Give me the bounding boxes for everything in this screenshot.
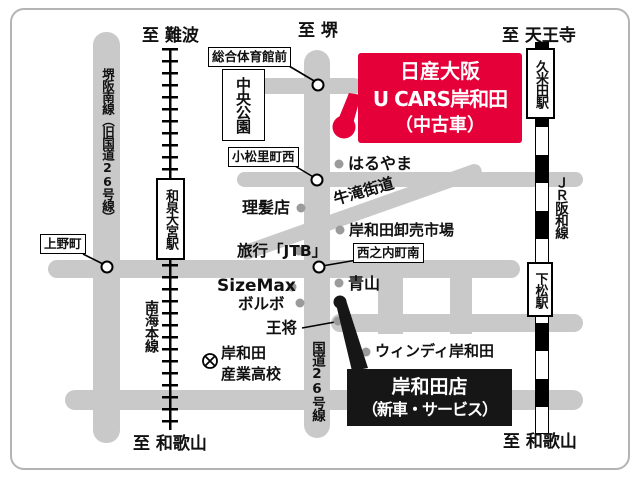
landmark-sangyo-hs-line1: 岸和田 (221, 346, 266, 362)
landmark-chuo-koen: 中央公園 (222, 69, 265, 141)
landmark-barber: 理髪店 (242, 200, 290, 217)
landmark-windy-kishiwada: ウィンディ岸和田 (375, 344, 494, 360)
dot-aoyama (335, 279, 344, 288)
direction-tennoji: 至 天王寺 (502, 28, 576, 46)
landmark-aoyama: 青山 (348, 276, 380, 293)
kishiwada-marker-dot (334, 296, 347, 309)
ucars-store-banner: 日産大阪 U CARS岸和田 （中古車） (358, 53, 522, 143)
landmark-jtb: 旅行「JTB」 (237, 243, 327, 259)
landmark-sangyo-hs-line2: 産業高校 (221, 367, 281, 383)
direction-wakayama-left: 至 和歌山 (133, 436, 207, 454)
intersection-circle-nishinouchi (314, 262, 325, 273)
leader-sogo-taiikukan (289, 66, 316, 82)
dot-haruyama (335, 160, 344, 169)
leader-osho (302, 322, 335, 328)
kishiwada-banner-line2: （新車・サービス） (347, 399, 512, 421)
direction-sakai: 至 堺 (298, 23, 338, 41)
kishiwada-shop-banner: 岸和田店 （新車・サービス） (347, 369, 512, 426)
ucars-banner-line2: U CARS岸和田 (358, 85, 522, 113)
station-izumi-omiya: 和泉大宮駅 (156, 178, 185, 260)
intersection-label-uenocho: 上野町 (40, 234, 86, 254)
ucars-banner-line1: 日産大阪 (358, 58, 522, 85)
direction-namba: 至 難波 (142, 28, 199, 46)
station-shimomatsu: 下松駅 (527, 262, 553, 317)
kishiwada-banner-line1: 岸和田店 (347, 375, 512, 399)
landmark-sizemax: SizeMax (217, 278, 296, 296)
intersection-circle-sogo-taiikukan (313, 80, 324, 91)
landmark-wholesale-market: 岸和田卸売市場 (349, 223, 454, 239)
ucars-banner-line3: （中古車） (358, 113, 522, 139)
intersection-circle-komatsuri (312, 175, 323, 186)
access-map: 堺阪南線（旧国道26号線） 南海本線 国道26号線 ＪＲ阪和線 牛滝街道 (0, 0, 640, 480)
leader-nishinouchi (322, 260, 357, 266)
intersection-label-sogo-taiikukan: 総合体育館前 (208, 47, 291, 67)
landmark-volvo: ボルボ (238, 296, 285, 312)
intersection-label-komatsuri: 小松里町西 (228, 147, 299, 167)
landmark-haruyama: はるやま (348, 156, 412, 173)
ucars-marker-dot (333, 116, 356, 139)
dot-wholesale-market (336, 226, 345, 235)
dot-barber (297, 204, 306, 213)
kishiwada-marker-tail (336, 300, 368, 371)
high-school-symbol-icon (203, 354, 217, 368)
direction-wakayama-right: 至 和歌山 (503, 434, 577, 452)
landmark-osho: 王将 (266, 320, 297, 336)
intersection-circle-uenocho (102, 262, 113, 273)
station-kumeda: 久米田駅 (526, 48, 555, 119)
intersection-label-nishinouchi: 西之内町南 (353, 243, 424, 263)
dot-volvo (296, 299, 305, 308)
